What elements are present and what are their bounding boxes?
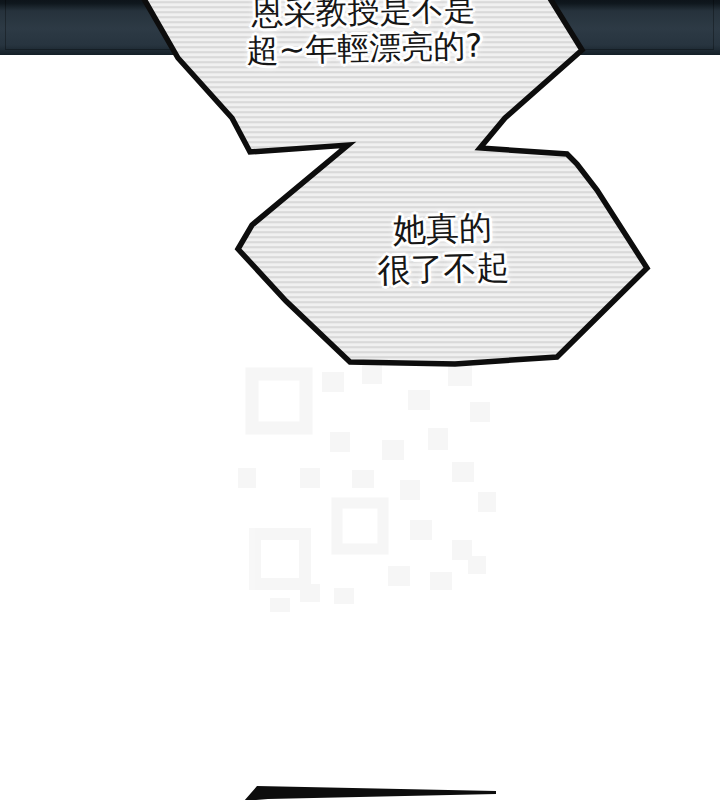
comic-page: 恩采教授是不是 超~年輕漂亮的? 她真的 很了不起 [0,0,720,800]
speech-line: 她真的 [342,206,543,251]
speech-bubble-1: 恩采教授是不是 超~年輕漂亮的? [237,0,490,70]
speech-line: 超~年輕漂亮的? [238,27,491,69]
next-bubble-edge-tip [244,786,496,800]
speech-line: 很了不起 [343,246,544,291]
bubble-art [0,0,720,800]
speech-bubble-2: 她真的 很了不起 [342,206,544,291]
qr-watermark-icon [238,362,496,612]
